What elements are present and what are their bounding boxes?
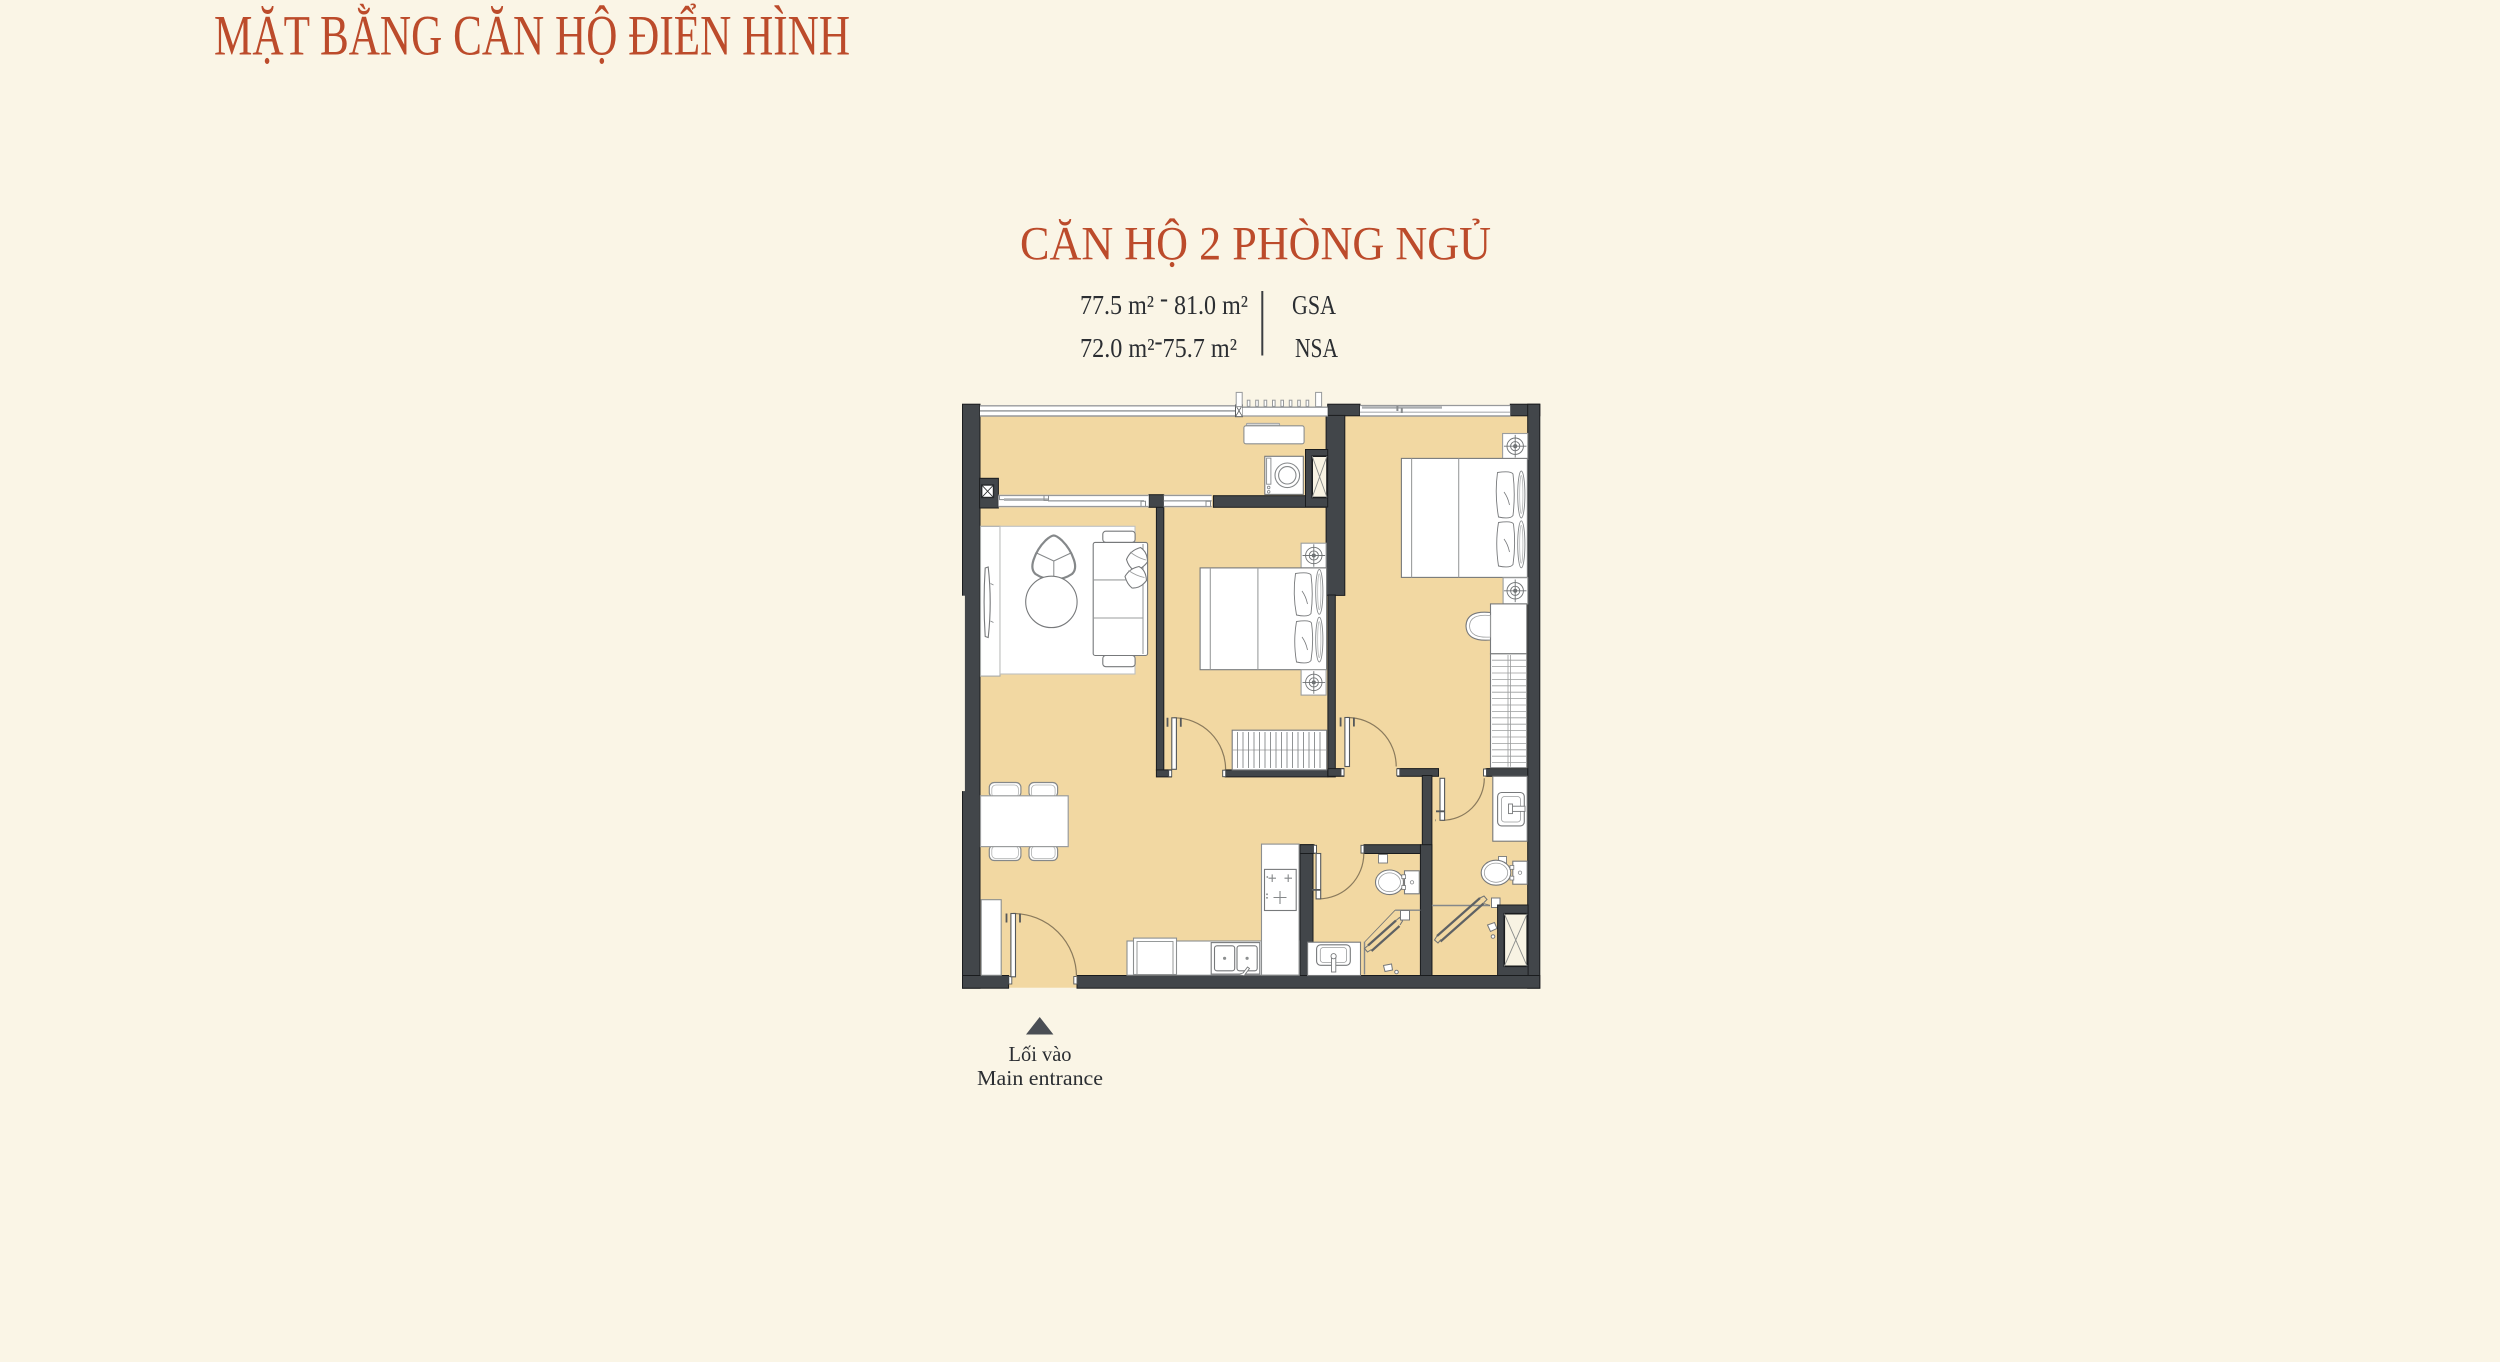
svg-text:Lối vào: Lối vào [1009,1042,1072,1066]
svg-text:GSA: GSA [1292,290,1336,320]
svg-text:MẶT BẰNG CĂN HỘ ĐIỂN HÌNH: MẶT BẰNG CĂN HỘ ĐIỂN HÌNH [214,4,850,68]
svg-text:CĂN HỘ 2 PHÒNG NGỦ: CĂN HỘ 2 PHÒNG NGỦ [1020,217,1491,271]
svg-text:NSA: NSA [1295,333,1338,363]
svg-text:Main entrance: Main entrance [977,1066,1103,1090]
